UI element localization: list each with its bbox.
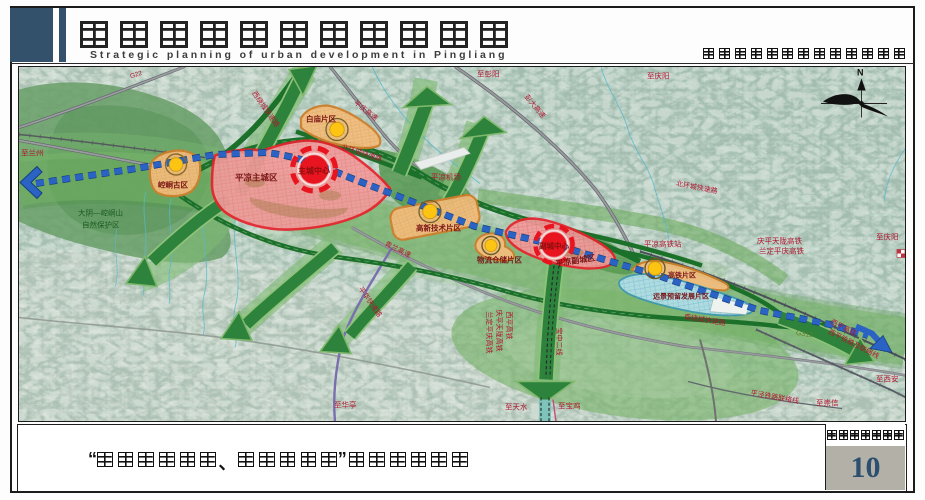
svg-text:N: N: [857, 68, 864, 78]
svg-text:至崇信: 至崇信: [816, 398, 839, 408]
svg-text:宝中二线: 宝中二线: [555, 328, 564, 356]
svg-text:物流仓储片区: 物流仓储片区: [477, 255, 522, 265]
svg-text:兰定平庆高铁: 兰定平庆高铁: [485, 312, 494, 354]
svg-text:至华亭: 至华亭: [334, 400, 357, 410]
svg-text:至庆阳: 至庆阳: [876, 232, 899, 242]
svg-text:大阴—崆峒山: 大阴—崆峒山: [78, 208, 123, 218]
svg-text:主城中心: 主城中心: [298, 166, 330, 176]
svg-text:至天水: 至天水: [505, 402, 528, 412]
svg-text:白庙片区: 白庙片区: [306, 114, 336, 124]
svg-text:崆峒古区: 崆峒古区: [158, 180, 188, 190]
svg-text:平凉高铁站: 平凉高铁站: [644, 239, 682, 249]
svg-text:至兰州: 至兰州: [21, 148, 44, 158]
svg-text:至宝鸡: 至宝鸡: [558, 401, 581, 411]
svg-text:至庆阳: 至庆阳: [647, 71, 670, 81]
svg-text:庆平天陇高铁: 庆平天陇高铁: [495, 310, 504, 352]
svg-text:至西安: 至西安: [876, 374, 899, 384]
svg-text:高新技术片区: 高新技术片区: [416, 223, 461, 233]
svg-text:远景预留发展片区: 远景预留发展片区: [653, 292, 709, 301]
svg-text:副城中心: 副城中心: [539, 241, 569, 251]
svg-text:平凉主城区: 平凉主城区: [235, 173, 278, 183]
svg-text:西平高铁: 西平高铁: [505, 312, 514, 340]
svg-text:兰定平庆高铁: 兰定平庆高铁: [759, 246, 804, 256]
svg-text:平凉机场: 平凉机场: [431, 172, 461, 182]
svg-text:自然保护区: 自然保护区: [82, 220, 120, 230]
svg-text:高铁片区: 高铁片区: [668, 271, 696, 280]
svg-text:庆平天陇高铁: 庆平天陇高铁: [757, 236, 802, 246]
svg-text:至彭阳: 至彭阳: [477, 69, 500, 79]
